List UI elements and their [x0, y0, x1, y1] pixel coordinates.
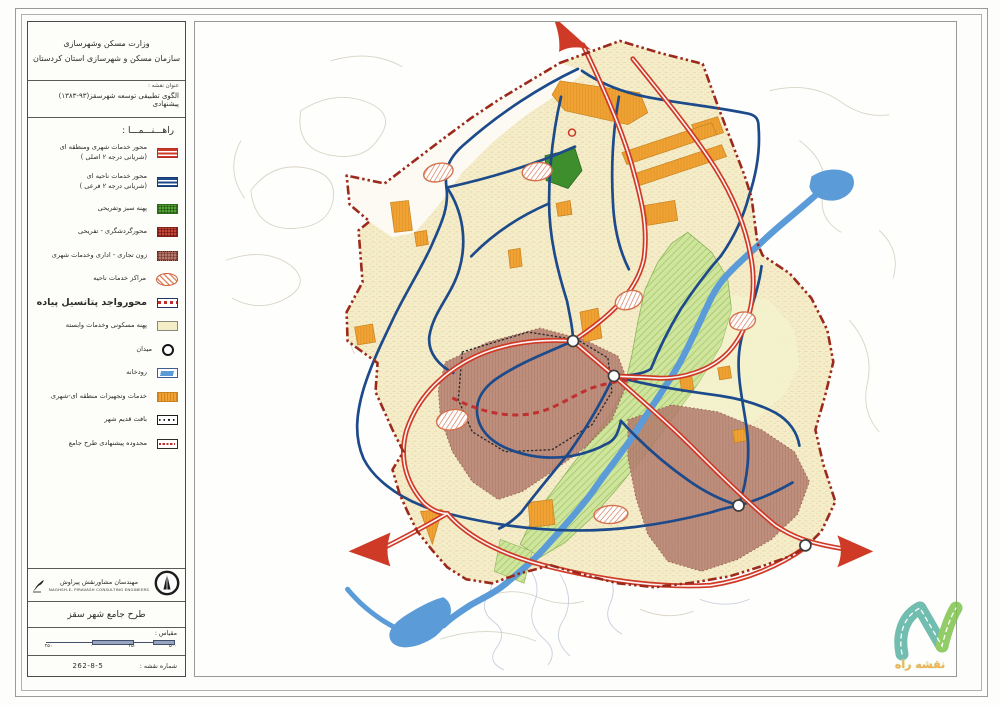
- legend-label: محور خدمات ناحیه ای: [87, 172, 147, 180]
- watermark-logo-icon: [884, 596, 984, 662]
- green-hatch-icon: [157, 204, 178, 214]
- legend-label: محدوده پیشنهادی طرح جامع: [69, 439, 147, 447]
- legend-label: مراکز خدمات ناحیه: [93, 274, 146, 282]
- service-patch: [733, 429, 747, 443]
- plaza-circle: [608, 370, 619, 381]
- ministry-name: وزارت مسکن وشهرسازی: [28, 39, 185, 48]
- legend-item-district-services-axis: محور خدمات ناحیه ای (شریانی درجه ۲ فرعی …: [33, 172, 178, 192]
- legend-sublabel: (شریانی درجه ۲ اصلی ): [33, 153, 147, 163]
- legend-item-green-recreation-zone: پهنه سبز وتفریحی: [33, 202, 178, 216]
- sheet-number-block: شماره نقشه : 262-8-5: [28, 656, 185, 676]
- red-dash-box-icon: [157, 298, 178, 308]
- legend-heading: راهـــنـــمـــا :: [33, 126, 174, 136]
- legend-item-pedestrian-potential-axis: محورواجد پتانسیل پیاده: [33, 296, 178, 310]
- organization-name: سازمان مسکن و شهرسازی استان کردستان: [28, 54, 185, 63]
- scale-tick: ۲۵۰: [45, 644, 53, 649]
- dashdot-box-icon: [157, 439, 178, 449]
- legend-item-district-service-centers: مراکز خدمات ناحیه: [33, 272, 178, 286]
- legend-item-river: رودخانه: [33, 366, 178, 380]
- brown-hatch-icon: [157, 251, 178, 261]
- map-canvas: [194, 21, 957, 677]
- circle-icon: [162, 344, 174, 356]
- legend-label: رودخانه: [126, 368, 147, 376]
- legend-label: پهنه سبز وتفریحی: [98, 204, 147, 212]
- signature-stamp-icon: [32, 578, 45, 592]
- plaza-circle: [800, 540, 811, 551]
- plan-map: [195, 22, 956, 676]
- map-sheet: وزارت مسکن وشهرسازی سازمان مسکن و شهرساز…: [0, 0, 1000, 705]
- legend-label: محورواجد پتانسیل پیاده: [37, 297, 147, 308]
- river-icon: [157, 368, 178, 378]
- legend-label: محور خدمات شهری ومنطقه ای: [60, 143, 147, 151]
- orange-box-icon: [157, 392, 178, 402]
- legend-label: خدمات وتجهیزات منطقه ای-شهری: [51, 392, 147, 400]
- legend-sublabel: (شریانی درجه ۲ فرعی ): [33, 182, 147, 192]
- map-title-block: عنوان نقشه : الگوی تطبیقی توسعه شهرسقز(‎…: [28, 81, 185, 118]
- service-patch: [414, 230, 428, 246]
- river-widening: [389, 597, 451, 647]
- hatched-ellipse-icon: [156, 273, 178, 286]
- legend-label: میدان: [136, 345, 152, 353]
- plaza-circle: [733, 500, 744, 511]
- southwest-exit-arrow: [349, 532, 391, 566]
- north-exit-arrow: [552, 22, 591, 52]
- river-west-arm: [348, 589, 399, 629]
- dotted-box-icon: [157, 415, 178, 425]
- southeast-exit-arrow: [837, 535, 873, 567]
- legend-item-old-city-fabric: بافت قدیم شهر: [33, 413, 178, 427]
- sheet-number-value: 262-8-5: [36, 662, 140, 670]
- watermark-text: نقشه راه: [884, 658, 956, 671]
- service-patch: [390, 200, 412, 232]
- header-block: وزارت مسکن وشهرسازی سازمان مسکن و شهرساز…: [28, 22, 185, 81]
- legend-item-regional-urban-services: خدمات وتجهیزات منطقه ای-شهری: [33, 390, 178, 404]
- legend-item-commercial-admin-zone: زون تجاری - اداری وخدمات شهری: [33, 249, 178, 263]
- service-patch: [508, 248, 522, 268]
- service-patch: [718, 366, 732, 380]
- scale-label: مقیاس :: [36, 630, 177, 637]
- consultant-logo-icon: [153, 569, 181, 601]
- service-patch: [355, 324, 376, 345]
- legend-item-plaza: میدان: [33, 343, 178, 357]
- watermark: نقشه راه: [884, 596, 984, 682]
- legend-label: محورگردشگری - تفریحی: [78, 227, 147, 235]
- legend-item-urban-regional-services-axis: محور خدمات شهری ومنطقه ای (شریانی درجه ۲…: [33, 143, 178, 163]
- legend-item-master-plan-boundary: محدوده پیشنهادی طرح جامع: [33, 437, 178, 451]
- consultant-name-fa: مهندسان مشاورنقش پیراوش: [45, 578, 153, 586]
- service-patch: [528, 500, 555, 528]
- legend-item-residential-zone: پهنه مسکونی وخدمات وابسته: [33, 319, 178, 333]
- legend-items: محور خدمات شهری ومنطقه ای (شریانی درجه ۲…: [33, 143, 178, 460]
- blue-road-icon: [157, 177, 178, 187]
- scale-block: مقیاس : ۲۵۰۰۲۵۰۵۰۰: [28, 628, 185, 656]
- plaza-circle: [568, 336, 579, 347]
- legend-label: بافت قدیم شهر: [104, 415, 147, 423]
- consultant-block: مهندسان مشاورنقش پیراوش NAGHSH-E- PIRAVA…: [28, 569, 185, 602]
- project-name: طرح جامع شهر سقز: [28, 602, 185, 628]
- consultant-names: مهندسان مشاورنقش پیراوش NAGHSH-E- PIRAVA…: [45, 578, 153, 593]
- service-patch: [556, 200, 572, 216]
- cream-box-icon: [157, 321, 178, 331]
- red-road-icon: [157, 148, 178, 158]
- scale-bar: ۲۵۰۰۲۵۰۵۰۰: [46, 638, 173, 648]
- legend-label: زون تجاری - اداری وخدمات شهری: [52, 251, 147, 259]
- scale-tick: ۰: [90, 644, 93, 649]
- map-title-label: عنوان نقشه :: [34, 83, 179, 89]
- legend-label: پهنه مسکونی وخدمات وابسته: [66, 321, 147, 329]
- scale-tick: ۲۵۰: [128, 644, 136, 649]
- legend: راهـــنـــمـــا : محور خدمات شهری ومنطقه…: [28, 118, 185, 569]
- consultant-name-en: NAGHSH-E- PIRAVASH CONSULTING ENGINEERS: [45, 587, 153, 592]
- scale-tick: ۵۰۰: [169, 644, 177, 649]
- sheet-number-label: شماره نقشه :: [140, 663, 177, 670]
- red-hatch-icon: [157, 227, 178, 237]
- title-and-legend-panel: وزارت مسکن وشهرسازی سازمان مسکن و شهرساز…: [27, 21, 186, 677]
- legend-item-tourism-recreation-axis: محورگردشگری - تفریحی: [33, 225, 178, 239]
- map-title: الگوی تطبیقی توسعه شهرسقز(‎۱۳۸۳-۹۳‎) پیش…: [34, 92, 179, 108]
